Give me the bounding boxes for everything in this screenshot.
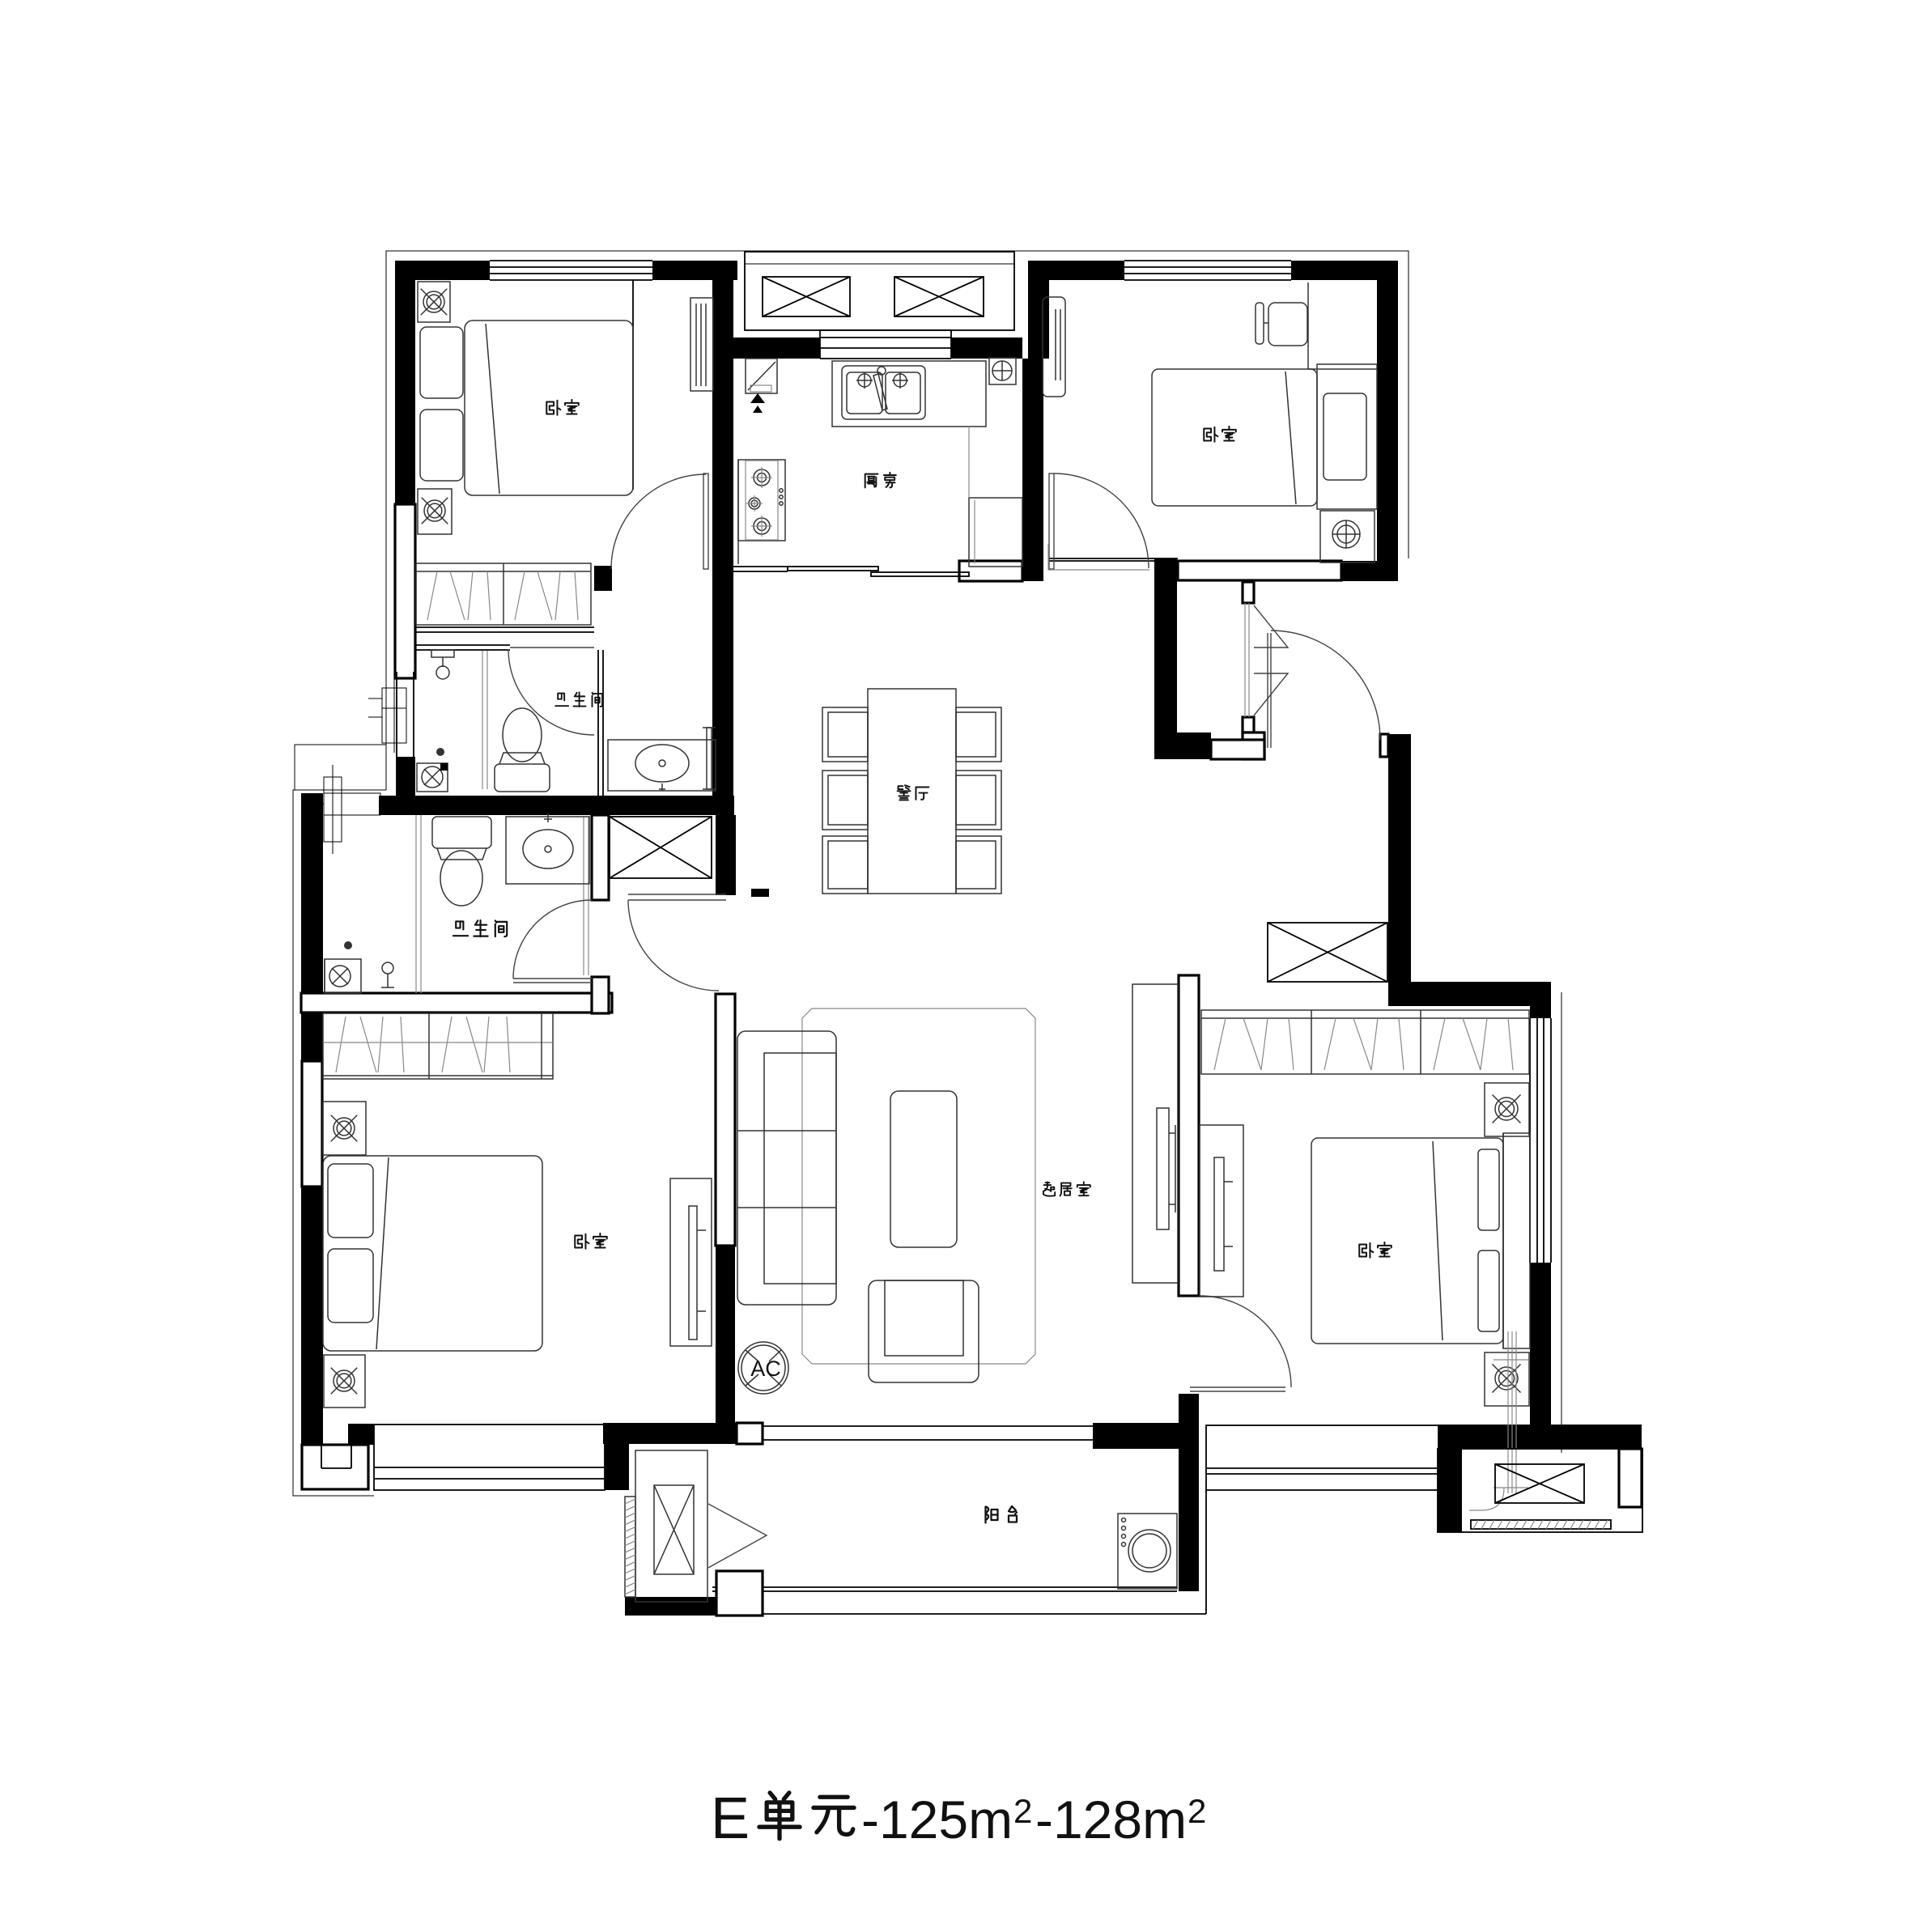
svg-text:-128m: -128m bbox=[1035, 1790, 1187, 1849]
svg-text:AC: AC bbox=[750, 1357, 781, 1381]
svg-text:2: 2 bbox=[1013, 1792, 1032, 1830]
svg-text:2: 2 bbox=[1188, 1792, 1206, 1830]
svg-text:-125m: -125m bbox=[861, 1790, 1013, 1849]
svg-text:E: E bbox=[711, 1786, 750, 1851]
